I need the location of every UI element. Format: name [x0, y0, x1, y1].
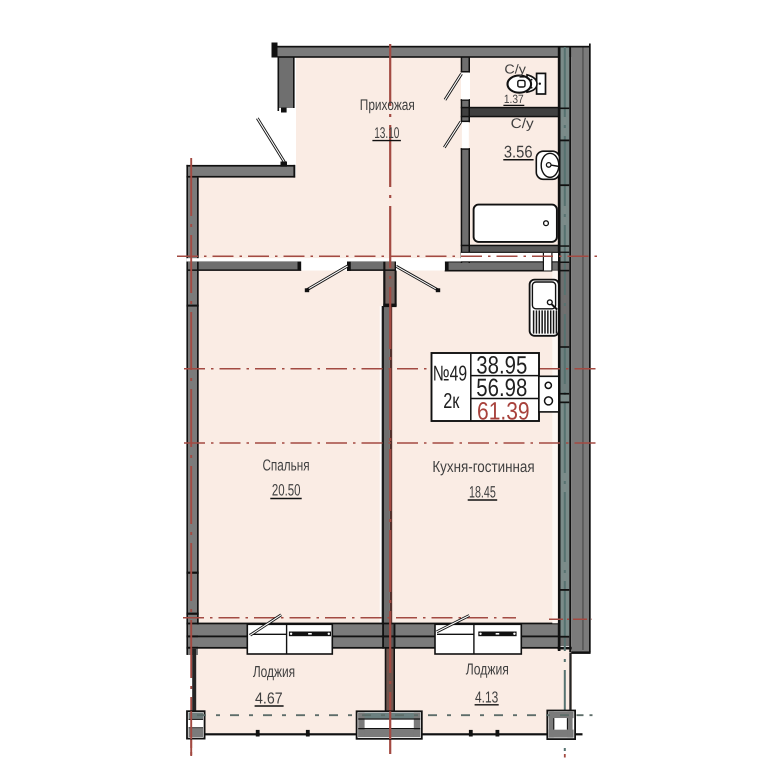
svg-text:№49: №49 [433, 361, 467, 385]
svg-text:С/у: С/у [511, 115, 534, 131]
svg-text:3.56: 3.56 [504, 142, 533, 161]
svg-text:4.67: 4.67 [255, 690, 283, 707]
svg-text:20.50: 20.50 [272, 481, 301, 499]
svg-text:4.13: 4.13 [475, 689, 498, 706]
svg-text:Спальня: Спальня [262, 458, 309, 475]
svg-text:Лоджия: Лоджия [466, 662, 509, 679]
svg-text:1.37: 1.37 [504, 92, 524, 106]
svg-text:13.10: 13.10 [374, 125, 399, 142]
svg-text:61.39: 61.39 [477, 398, 530, 426]
svg-text:18.45: 18.45 [469, 483, 496, 501]
svg-text:С/у: С/у [504, 61, 526, 76]
svg-text:2к: 2к [443, 389, 460, 413]
svg-text:Лоджия: Лоджия [253, 664, 295, 681]
svg-text:Прихожая: Прихожая [360, 97, 415, 114]
svg-text:Кухня-гостинная: Кухня-гостинная [432, 459, 534, 476]
